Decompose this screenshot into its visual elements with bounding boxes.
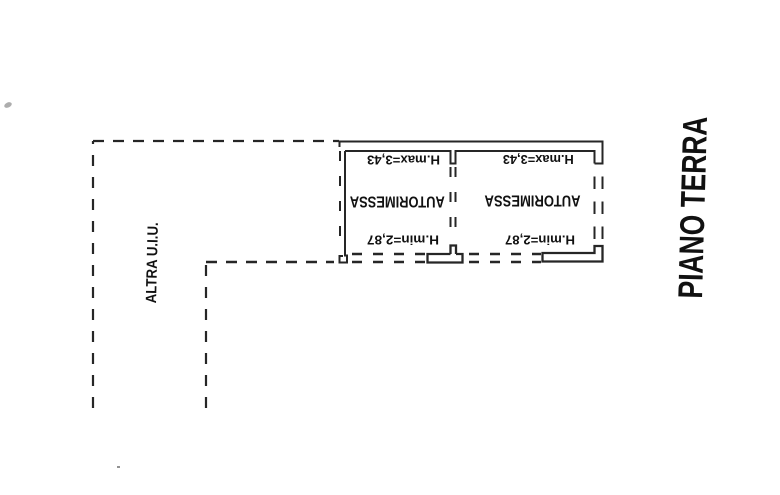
svg-text:H.max=3,43: H.max=3,43 bbox=[367, 153, 440, 167]
svg-text:ALTRA U.I.U.: ALTRA U.I.U. bbox=[143, 222, 162, 303]
svg-text:PIANO TERRA: PIANO TERRA bbox=[672, 116, 715, 299]
svg-text:AUTORIMESSA: AUTORIMESSA bbox=[349, 192, 444, 209]
svg-text:AUTORIMESSA: AUTORIMESSA bbox=[484, 192, 580, 209]
svg-text:H.min=2,87: H.min=2,87 bbox=[367, 233, 439, 247]
svg-text:H.max=3,43: H.max=3,43 bbox=[503, 152, 574, 166]
svg-text:H.min=2,87: H.min=2,87 bbox=[505, 233, 575, 247]
